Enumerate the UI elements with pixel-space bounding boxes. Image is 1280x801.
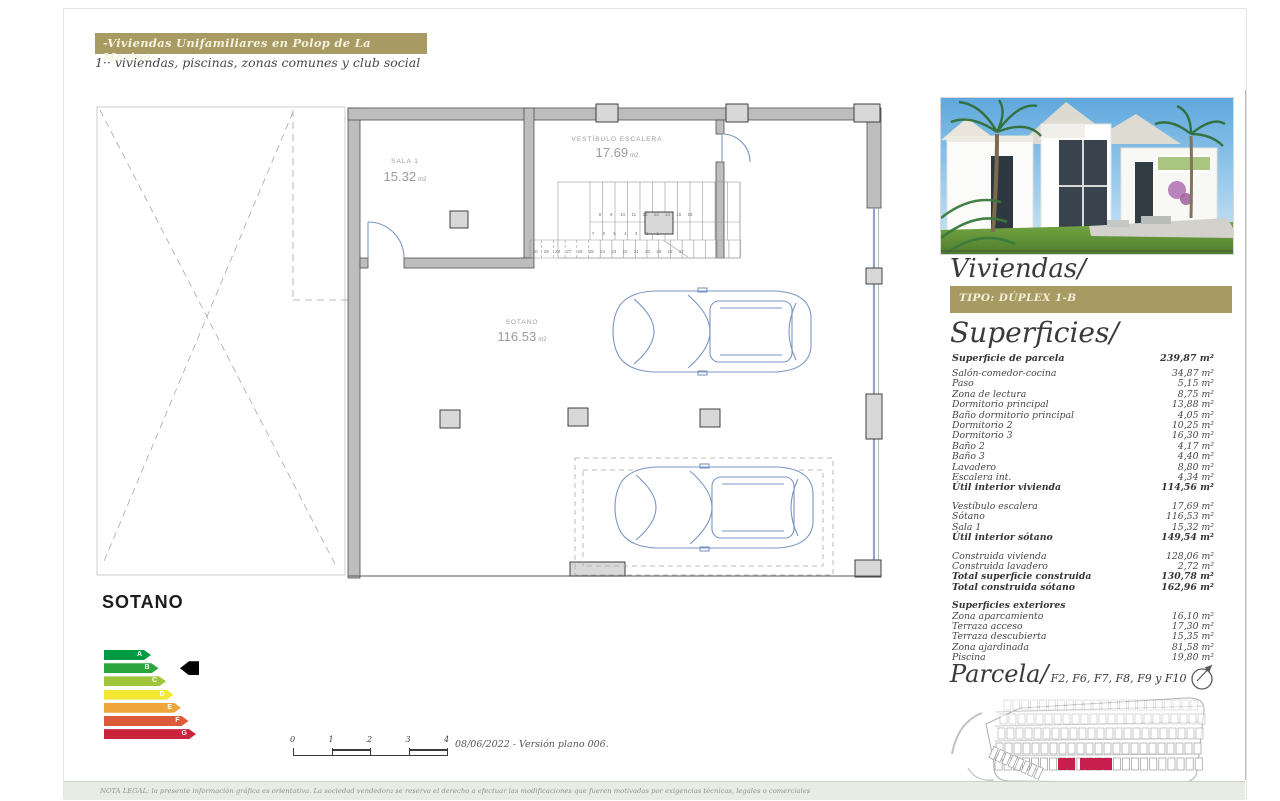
svg-text:14: 14 bbox=[665, 212, 671, 217]
superficies-title: Superficies/ bbox=[950, 316, 1119, 349]
energy-rating-bar-B: B bbox=[104, 663, 159, 673]
energy-rating-bar-F: F bbox=[104, 716, 189, 726]
highlighted-parcel bbox=[1080, 758, 1112, 770]
energy-rating-chart: ABCDEFG bbox=[104, 650, 234, 750]
car-1 bbox=[613, 288, 811, 375]
svg-text:25: 25 bbox=[589, 249, 595, 254]
parcel-surface-row: Superficie de parcela 239,87 m² bbox=[952, 353, 1214, 364]
energy-rating-bars: ABCDEFG bbox=[104, 650, 234, 739]
type-banner: TIPO: DÚPLEX 1-B bbox=[950, 286, 1232, 313]
sheet-right-divider bbox=[1245, 90, 1246, 780]
svg-text:28: 28 bbox=[555, 249, 561, 254]
svg-text:22: 22 bbox=[622, 249, 628, 254]
svg-text:18: 18 bbox=[667, 249, 673, 254]
svg-text:6: 6 bbox=[603, 231, 606, 236]
svg-text:1: 1 bbox=[657, 231, 660, 236]
energy-rating-bar-E: E bbox=[104, 703, 181, 713]
svg-text:16: 16 bbox=[687, 212, 693, 217]
surface-row: Baño 24,17 m² bbox=[952, 442, 1214, 452]
parcela-heading: Parcela/ F2, F6, F7, F8, F9 y F10 bbox=[950, 660, 1187, 688]
room-label-sotano: SOTANO bbox=[506, 319, 539, 326]
project-title-banner: -Viviendas Unifamiliares en Polop de La … bbox=[95, 33, 427, 54]
surface-row: Útil interior sótano149,54 m² bbox=[952, 533, 1214, 543]
room-label-vestibulo: VESTÍBULO ESCALERA bbox=[572, 134, 663, 143]
svg-text:10: 10 bbox=[620, 212, 626, 217]
svg-text:12: 12 bbox=[642, 212, 648, 217]
svg-text:9: 9 bbox=[610, 212, 613, 217]
svg-text:26: 26 bbox=[577, 249, 583, 254]
floor-title: SOTANO bbox=[102, 592, 184, 613]
surface-row: Útil interior vivienda114,56 m² bbox=[952, 483, 1214, 493]
room-area-sala1: 15.32m2 bbox=[384, 169, 428, 184]
svg-text:13: 13 bbox=[654, 212, 660, 217]
svg-text:15: 15 bbox=[676, 212, 682, 217]
highlighted-parcel bbox=[1058, 758, 1075, 770]
room-area-sotano: 116.53m2 bbox=[497, 329, 547, 344]
surface-row: Superficies exteriores bbox=[952, 601, 1214, 611]
stair-numbers-top: 8910111213141516 bbox=[599, 212, 693, 217]
surfaces-table: Salón-comedor-cocina34,87 m²Paso5,15 m²Z… bbox=[952, 369, 1214, 672]
project-subtitle: 1·· viviendas, piscinas, zonas comunes y… bbox=[95, 55, 420, 70]
svg-text:3: 3 bbox=[635, 231, 638, 236]
energy-rating-bar-G: G bbox=[104, 729, 196, 739]
parcela-plot-list: F2, F6, F7, F8, F9 y F10 bbox=[1051, 672, 1187, 685]
villa-render-photo bbox=[940, 97, 1234, 255]
svg-text:4: 4 bbox=[624, 231, 627, 236]
site-plan-map bbox=[948, 692, 1240, 788]
svg-text:11: 11 bbox=[631, 212, 636, 217]
car-2 bbox=[615, 464, 813, 551]
door-swings bbox=[368, 134, 750, 258]
floor-plan-drawing: 8910111213141516 7654321 302928272625242… bbox=[88, 88, 948, 593]
svg-text:20: 20 bbox=[645, 249, 651, 254]
svg-text:7: 7 bbox=[592, 231, 595, 236]
energy-rating-bar-C: C bbox=[104, 676, 166, 686]
svg-text:21: 21 bbox=[634, 249, 640, 254]
staircase: 8910111213141516 7654321 302928272625242… bbox=[530, 182, 741, 258]
svg-text:29: 29 bbox=[544, 249, 550, 254]
ramp-zone bbox=[97, 107, 348, 575]
room-area-vestibulo: 17.69m2 bbox=[596, 145, 640, 160]
svg-text:8: 8 bbox=[599, 212, 602, 217]
room-label-sala1: SALA 1 bbox=[391, 158, 419, 165]
energy-rating-bar-D: D bbox=[104, 690, 174, 700]
svg-text:23: 23 bbox=[611, 249, 617, 254]
viviendas-title: Viviendas/ bbox=[950, 254, 1086, 284]
legal-note: NOTA LEGAL: la presente información gráf… bbox=[64, 781, 1245, 800]
svg-text:19: 19 bbox=[656, 249, 662, 254]
surface-row: Total construida sótano162,96 m² bbox=[952, 583, 1214, 593]
svg-text:2: 2 bbox=[646, 231, 649, 236]
svg-text:17: 17 bbox=[679, 249, 685, 254]
svg-text:5: 5 bbox=[613, 231, 616, 236]
plan-version-caption: 08/06/2022 - Versión plano 006. bbox=[455, 739, 609, 750]
svg-text:24: 24 bbox=[600, 249, 606, 254]
north-arrow-icon bbox=[1186, 660, 1220, 694]
stair-numbers-bottom: 3029282726252423222120191817 bbox=[532, 249, 684, 254]
svg-text:27: 27 bbox=[566, 249, 572, 254]
scale-bar: 01234 bbox=[293, 736, 447, 756]
svg-text:30: 30 bbox=[532, 249, 538, 254]
surface-row: Dormitorio 316,30 m² bbox=[952, 431, 1214, 441]
surface-row: Salón-comedor-cocina34,87 m² bbox=[952, 369, 1214, 379]
energy-rating-bar-A: A bbox=[104, 650, 151, 660]
parcela-title: Parcela/ bbox=[950, 660, 1049, 688]
